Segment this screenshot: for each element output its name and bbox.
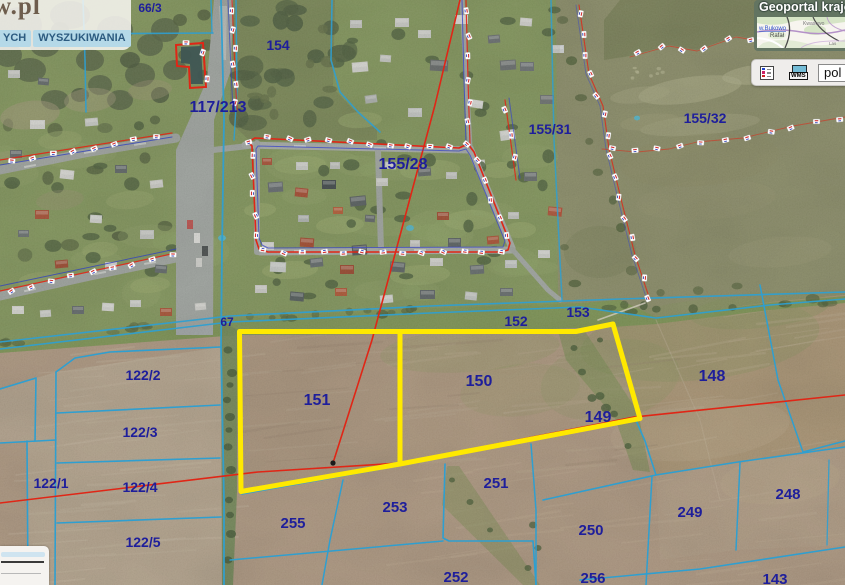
svg-text:255: 255 xyxy=(280,515,305,532)
svg-text:154: 154 xyxy=(266,37,290,53)
svg-text:152: 152 xyxy=(504,313,528,329)
svg-text:249: 249 xyxy=(677,504,702,521)
svg-text:143: 143 xyxy=(762,571,787,585)
svg-text:Kwasowo: Kwasowo xyxy=(803,21,825,27)
svg-text:122/5: 122/5 xyxy=(125,534,160,550)
svg-text:151: 151 xyxy=(304,392,331,409)
svg-text:66/3: 66/3 xyxy=(138,1,162,15)
svg-text:Rafał: Rafał xyxy=(770,33,785,39)
svg-text:148: 148 xyxy=(699,368,726,385)
svg-text:251: 251 xyxy=(483,475,508,492)
svg-text:253: 253 xyxy=(382,499,407,516)
svg-text:153: 153 xyxy=(566,304,590,320)
svg-text:155/32: 155/32 xyxy=(684,110,727,126)
svg-text:252: 252 xyxy=(443,569,468,585)
svg-text:67: 67 xyxy=(220,315,234,329)
svg-text:117/213: 117/213 xyxy=(190,99,247,116)
svg-text:155/31: 155/31 xyxy=(529,121,572,137)
svg-text:155/28: 155/28 xyxy=(379,156,428,173)
svg-text:250: 250 xyxy=(578,522,603,539)
svg-text:Las: Las xyxy=(829,41,837,46)
svg-text:149: 149 xyxy=(585,409,612,426)
svg-text:256: 256 xyxy=(580,570,605,585)
svg-text:150: 150 xyxy=(466,373,493,390)
svg-text:248: 248 xyxy=(775,486,800,503)
svg-text:122/3: 122/3 xyxy=(122,424,157,440)
svg-text:122/4: 122/4 xyxy=(122,479,157,495)
svg-text:122/2: 122/2 xyxy=(125,367,160,383)
svg-text:122/1: 122/1 xyxy=(33,475,68,491)
svg-text:w.Bukowo: w.Bukowo xyxy=(758,26,787,32)
